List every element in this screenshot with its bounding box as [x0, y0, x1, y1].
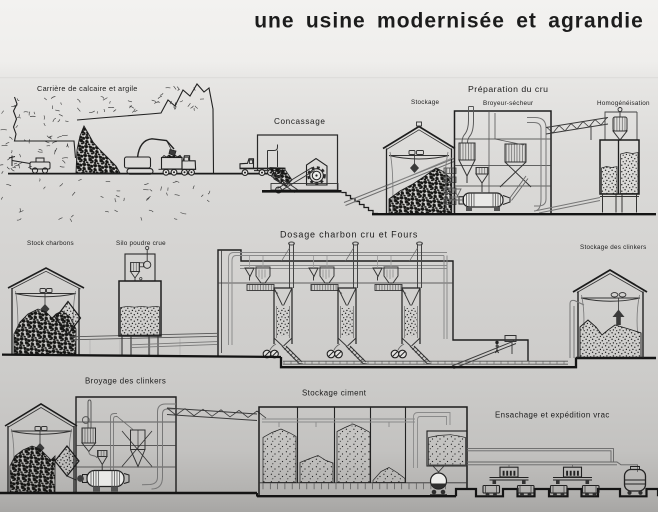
svg-text:Préparation du cru: Préparation du cru	[468, 84, 548, 94]
svg-text:Homogénéisation: Homogénéisation	[597, 100, 650, 107]
svg-text:Broyeur-sécheur: Broyeur-sécheur	[483, 100, 533, 107]
svg-text:Stockage ciment: Stockage ciment	[302, 389, 367, 398]
svg-text:Stock charbons: Stock charbons	[27, 240, 74, 247]
svg-text:Concassage: Concassage	[274, 117, 326, 126]
svg-text:une usine modernisée et agrand: une usine modernisée et agrandie	[254, 10, 644, 33]
svg-text:Ensachage et expédition vrac: Ensachage et expédition vrac	[495, 411, 610, 420]
svg-text:Dosage charbon cru et Fours: Dosage charbon cru et Fours	[280, 230, 418, 240]
svg-text:Carrière de calcaire et argile: Carrière de calcaire et argile	[37, 84, 138, 93]
svg-text:Stockage des clinkers: Stockage des clinkers	[580, 244, 647, 251]
svg-text:Broyage des clinkers: Broyage des clinkers	[85, 377, 166, 386]
svg-text:Silo poudre crue: Silo poudre crue	[116, 240, 166, 247]
svg-text:Stockage: Stockage	[411, 99, 440, 106]
